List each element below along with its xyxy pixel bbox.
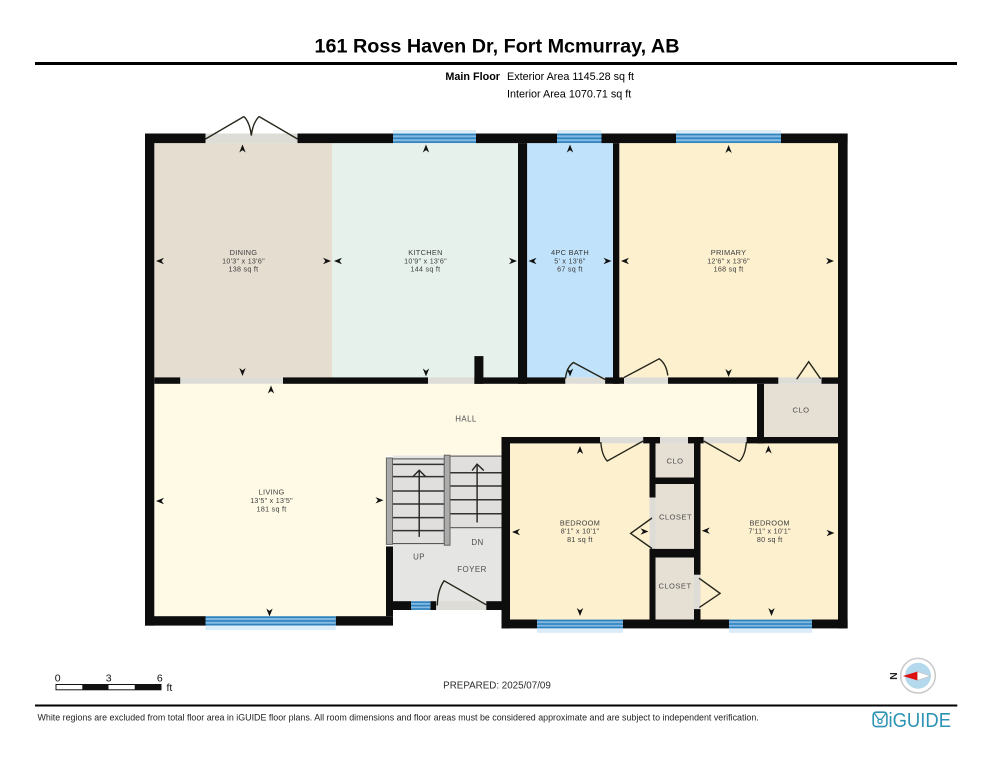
svg-text:7'11" x 10'1": 7'11" x 10'1"	[749, 528, 791, 536]
svg-text:KITCHEN: KITCHEN	[408, 248, 443, 257]
svg-text:UP: UP	[413, 553, 425, 562]
svg-text:10'9" x 13'6": 10'9" x 13'6"	[404, 257, 447, 265]
svg-text:81 sq ft: 81 sq ft	[567, 536, 593, 544]
svg-text:181 sq ft: 181 sq ft	[257, 506, 287, 514]
svg-text:Interior Area 1070.71 sq ft: Interior Area 1070.71 sq ft	[507, 89, 631, 101]
svg-text:5' x 13'6": 5' x 13'6"	[554, 257, 586, 265]
svg-text:144 sq ft: 144 sq ft	[411, 266, 441, 274]
svg-text:DINING: DINING	[230, 248, 258, 257]
svg-text:DN: DN	[471, 538, 483, 547]
svg-text:161 Ross Haven Dr, Fort Mcmurr: 161 Ross Haven Dr, Fort Mcmurray, AB	[315, 36, 680, 58]
svg-text:0: 0	[55, 673, 61, 685]
svg-text:Main Floor: Main Floor	[445, 71, 500, 83]
svg-text:3: 3	[106, 673, 112, 685]
svg-text:67 sq ft: 67 sq ft	[557, 266, 583, 274]
svg-text:10'3" x 13'6": 10'3" x 13'6"	[222, 257, 265, 265]
svg-text:PREPARED: 2025/07/09: PREPARED: 2025/07/09	[443, 681, 551, 692]
svg-text:ft: ft	[167, 682, 173, 694]
svg-text:CLO: CLO	[793, 406, 810, 415]
svg-text:CLOSET: CLOSET	[659, 513, 692, 522]
svg-text:LIVING: LIVING	[259, 488, 285, 497]
svg-text:BEDROOM: BEDROOM	[560, 519, 600, 528]
svg-text:4PC BATH: 4PC BATH	[551, 248, 589, 257]
svg-text:iGUIDE: iGUIDE	[889, 710, 952, 732]
svg-text:HALL: HALL	[455, 414, 477, 423]
svg-text:N: N	[887, 672, 899, 680]
svg-text:PRIMARY: PRIMARY	[711, 248, 747, 257]
svg-text:168 sq ft: 168 sq ft	[714, 266, 744, 274]
svg-text:6: 6	[157, 673, 163, 685]
svg-text:12'6" x 13'6": 12'6" x 13'6"	[707, 257, 750, 265]
svg-text:CLOSET: CLOSET	[658, 581, 691, 590]
svg-text:BEDROOM: BEDROOM	[750, 519, 790, 528]
svg-text:Exterior Area 1145.28 sq ft: Exterior Area 1145.28 sq ft	[507, 71, 634, 83]
svg-text:13'5" x 13'5": 13'5" x 13'5"	[250, 497, 293, 505]
svg-text:CLO: CLO	[667, 456, 684, 465]
svg-text:8'1" x 10'1": 8'1" x 10'1"	[561, 528, 600, 536]
svg-text:138 sq ft: 138 sq ft	[229, 266, 259, 274]
svg-text:80 sq ft: 80 sq ft	[757, 536, 783, 544]
svg-text:White regions are excluded fro: White regions are excluded from total fl…	[38, 713, 759, 723]
svg-text:FOYER: FOYER	[457, 565, 486, 574]
